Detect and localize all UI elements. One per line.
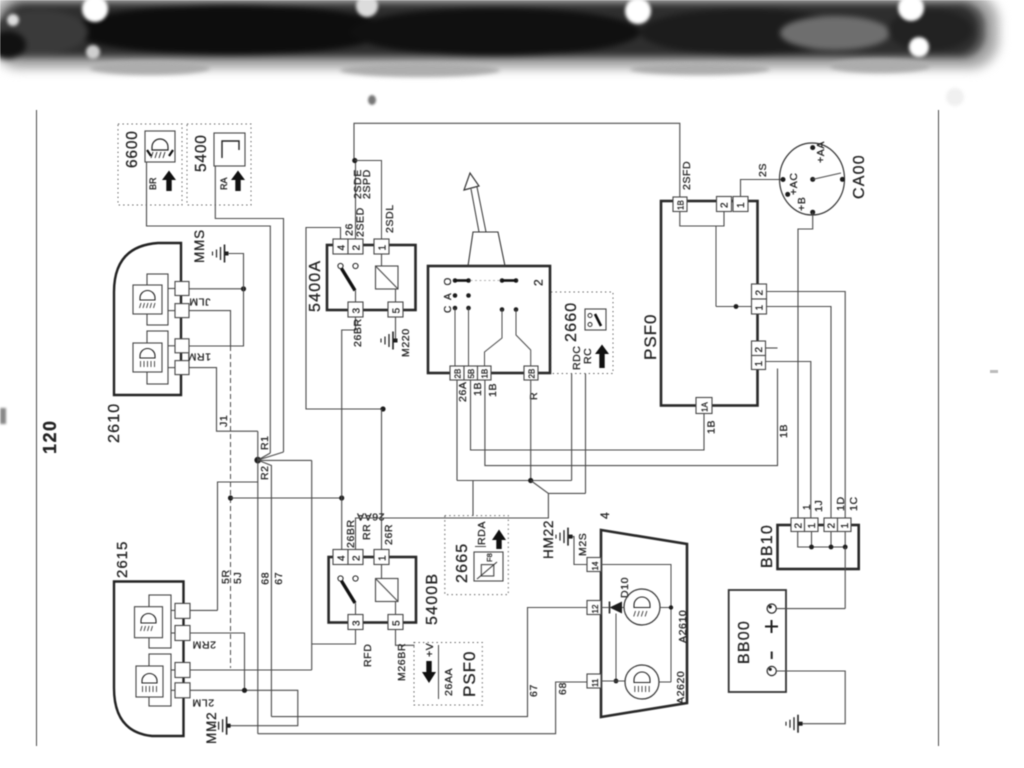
svg-text:3: 3 [352,308,363,314]
svg-text:1B: 1B [677,200,686,210]
svg-text:BR: BR [148,177,158,190]
svg-text:+B: +B [796,197,808,211]
svg-text:+V: +V [424,643,436,657]
svg-text:2: 2 [754,347,765,353]
svg-text:1: 1 [802,504,813,510]
svg-text:2: 2 [794,523,805,529]
svg-text:2: 2 [352,555,363,561]
svg-text:+AC: +AC [788,172,800,195]
svg-text:1: 1 [755,305,766,311]
svg-text:A: A [443,293,454,300]
svg-text:4: 4 [337,555,348,561]
svg-text:26AA: 26AA [443,668,455,696]
svg-text:6600: 6600 [124,130,141,168]
svg-text:BB10: BB10 [759,524,776,568]
svg-text:2B: 2B [528,369,537,379]
svg-text:68: 68 [557,682,569,695]
svg-text:5B: 5B [467,369,476,379]
svg-text:J1: J1 [218,415,230,427]
svg-text:MMS: MMS [192,229,207,263]
svg-text:5: 5 [392,308,403,314]
svg-text:2SFD: 2SFD [681,161,693,190]
svg-text:26R: 26R [383,524,395,545]
svg-text:PSF0: PSF0 [641,313,660,360]
svg-text:5: 5 [392,620,403,626]
svg-text:2LM: 2LM [192,697,214,709]
svg-text:5400: 5400 [193,134,210,172]
svg-text:1: 1 [378,245,389,251]
svg-text:1D: 1D [835,496,847,511]
svg-text:CA00: CA00 [851,154,868,199]
svg-text:R1: R1 [259,435,271,450]
svg-text:O: O [443,278,454,286]
svg-text:1B: 1B [472,382,484,396]
svg-text:HM22: HM22 [541,520,556,559]
svg-text:2610: 2610 [106,403,123,443]
svg-text:1B: 1B [778,424,790,438]
svg-text:12: 12 [591,604,600,613]
svg-text:1J: 1J [813,500,825,512]
svg-text:R2: R2 [259,465,271,480]
svg-text:1RM: 1RM [187,351,211,363]
svg-text:1: 1 [807,523,818,529]
svg-text:4: 4 [598,512,612,519]
svg-text:2: 2 [352,245,363,251]
svg-text:2615: 2615 [114,541,131,578]
svg-text:2SPD: 2SPD [361,169,373,199]
svg-text:68: 68 [260,572,272,585]
svg-text:F8: F8 [485,553,494,562]
svg-text:14: 14 [591,561,600,570]
svg-text:A2620: A2620 [675,671,687,704]
svg-text:2SDL: 2SDL [384,204,396,233]
svg-text:MM2: MM2 [204,712,219,744]
svg-text:1B: 1B [481,369,490,379]
svg-text:2: 2 [720,202,731,208]
svg-text:M26BR: M26BR [396,643,408,681]
svg-text:+AA: +AA [815,141,827,163]
svg-text:2B: 2B [454,369,463,379]
svg-text:1B: 1B [487,383,499,397]
svg-text:2SED: 2SED [355,207,367,237]
svg-text:1: 1 [378,555,389,561]
svg-text:2665: 2665 [454,543,471,583]
svg-text:2660: 2660 [563,302,580,342]
svg-text:1C: 1C [848,496,860,511]
svg-text:JLM: JLM [189,296,211,308]
svg-text:1: 1 [754,361,765,367]
svg-text:2: 2 [827,523,838,529]
svg-text:1: 1 [736,202,747,208]
svg-text:11: 11 [591,678,600,687]
svg-text:4: 4 [337,245,348,251]
svg-text:BB00: BB00 [736,620,753,664]
svg-text:2RM: 2RM [192,639,216,651]
svg-text:RR: RR [361,524,373,540]
svg-text:26A: 26A [457,382,469,402]
svg-text:3: 3 [352,620,363,626]
svg-text:5400A: 5400A [307,260,324,312]
svg-text:RFD: RFD [362,644,374,667]
svg-text:120: 120 [40,419,60,454]
svg-text:M2S: M2S [577,533,589,556]
svg-text:C: C [443,306,454,313]
svg-text:A2610: A2610 [677,610,689,643]
svg-text:M220: M220 [400,328,412,357]
svg-text:PSF0: PSF0 [460,650,479,697]
svg-text:2: 2 [532,279,546,286]
svg-text:67: 67 [273,572,285,585]
svg-text:5J: 5J [232,572,244,584]
svg-text:2: 2 [755,290,766,296]
svg-text:RC: RC [582,348,594,364]
svg-text:26BR: 26BR [352,318,364,347]
svg-text:RA: RA [219,177,229,190]
svg-text:1A: 1A [701,402,710,412]
svg-text:5R: 5R [220,569,232,584]
svg-text:5400B: 5400B [424,573,441,625]
svg-text:67: 67 [528,684,540,697]
svg-text:1B: 1B [706,420,718,434]
svg-text:26AA: 26AA [356,511,384,523]
svg-text:R: R [528,392,540,400]
svg-text:1: 1 [840,523,851,529]
svg-text:2S: 2S [757,163,769,177]
svg-text:RDA: RDA [476,521,488,545]
